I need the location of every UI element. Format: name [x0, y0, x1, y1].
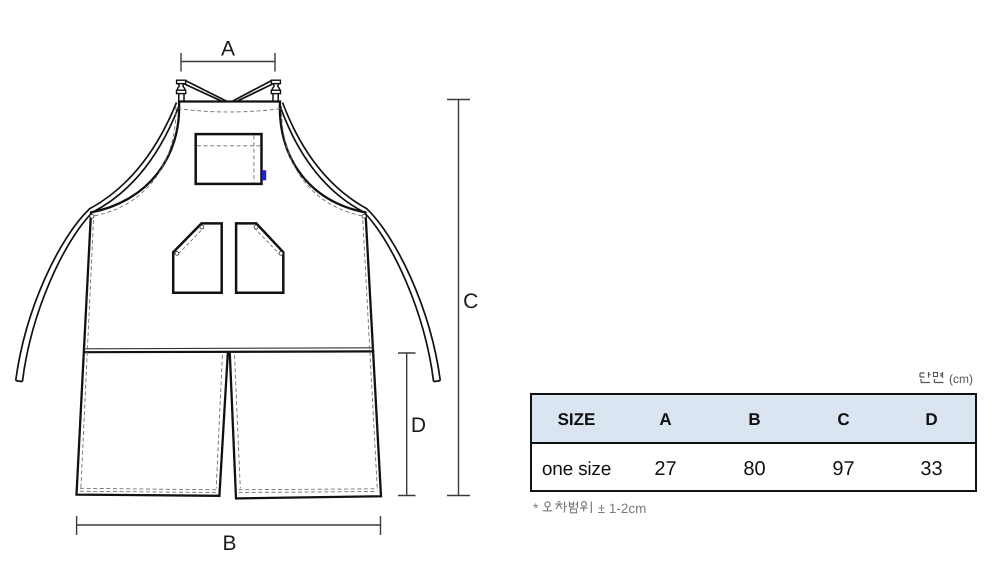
svg-text:D: D: [411, 414, 426, 437]
svg-text:C: C: [463, 290, 478, 313]
svg-text:B: B: [222, 532, 236, 555]
svg-text:A: A: [221, 38, 235, 61]
